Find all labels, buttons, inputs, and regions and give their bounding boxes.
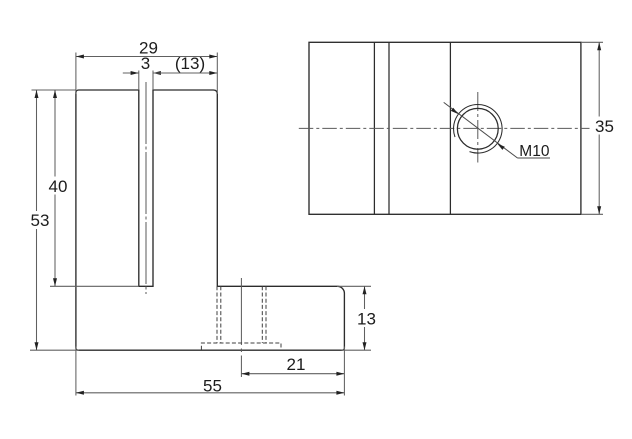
svg-text:21: 21 [287, 355, 306, 374]
svg-text:M10: M10 [519, 143, 550, 160]
svg-text:35: 35 [595, 117, 614, 136]
svg-text:13: 13 [357, 310, 376, 329]
svg-text:53: 53 [31, 211, 50, 230]
svg-text:55: 55 [203, 376, 222, 395]
svg-text:3: 3 [141, 54, 150, 73]
svg-text:(13): (13) [175, 54, 205, 73]
svg-text:40: 40 [49, 177, 68, 196]
